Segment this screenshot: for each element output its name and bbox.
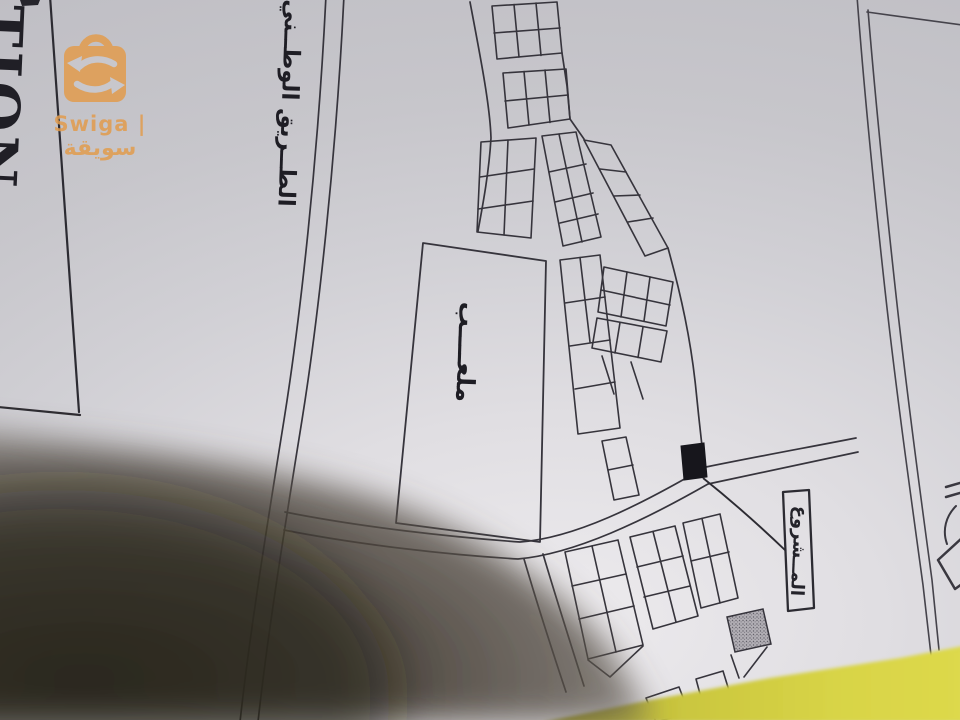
national-road-label: الطــريق الوطــني [267, 0, 310, 209]
photo-shadow [0, 430, 650, 720]
boundary-line [668, 248, 702, 446]
parcel-block-two-cell [602, 437, 639, 500]
watermark-logo: Swiga | سويقة [10, 18, 190, 148]
stadium-label: ملعــــب [446, 276, 487, 427]
project-parcel [681, 443, 707, 480]
parcel-block-fan-2 [598, 267, 673, 326]
street-line-left [470, 2, 491, 231]
sheet-border [857, 0, 960, 655]
parcel-block-bottom-2 [630, 526, 698, 629]
title-block-scale-value: éch:1/5000 [0, 218, 2, 436]
parcel-block-fan-strip [560, 255, 620, 434]
parcel-stub-lines [602, 356, 643, 399]
watermark-brand-arabic: سويقة [64, 136, 137, 161]
sheet-border-inner-line [868, 10, 939, 650]
parcel-block-bottom-3 [683, 514, 738, 608]
photo-of-site-plan: الطــريق الوطــني ملعــــب المــشروع TIO… [0, 0, 960, 720]
project-label: المــشروع [785, 498, 814, 605]
shopping-bag-swap-arrows-icon [58, 22, 134, 106]
parcel-block-top-2 [503, 69, 570, 128]
parcel-block-mid-column [542, 132, 601, 246]
sheet-border-outer-line [857, 0, 931, 655]
north-arrow-icon [938, 483, 960, 589]
hatched-parcel [727, 609, 771, 652]
watermark-brand-latin: Swiga [54, 112, 130, 136]
watermark-divider: | [138, 112, 147, 136]
watermark-text: Swiga | سويقة [14, 112, 186, 161]
parcel-block-top-1 [492, 2, 562, 59]
sheet-border-top-line [867, 12, 960, 25]
